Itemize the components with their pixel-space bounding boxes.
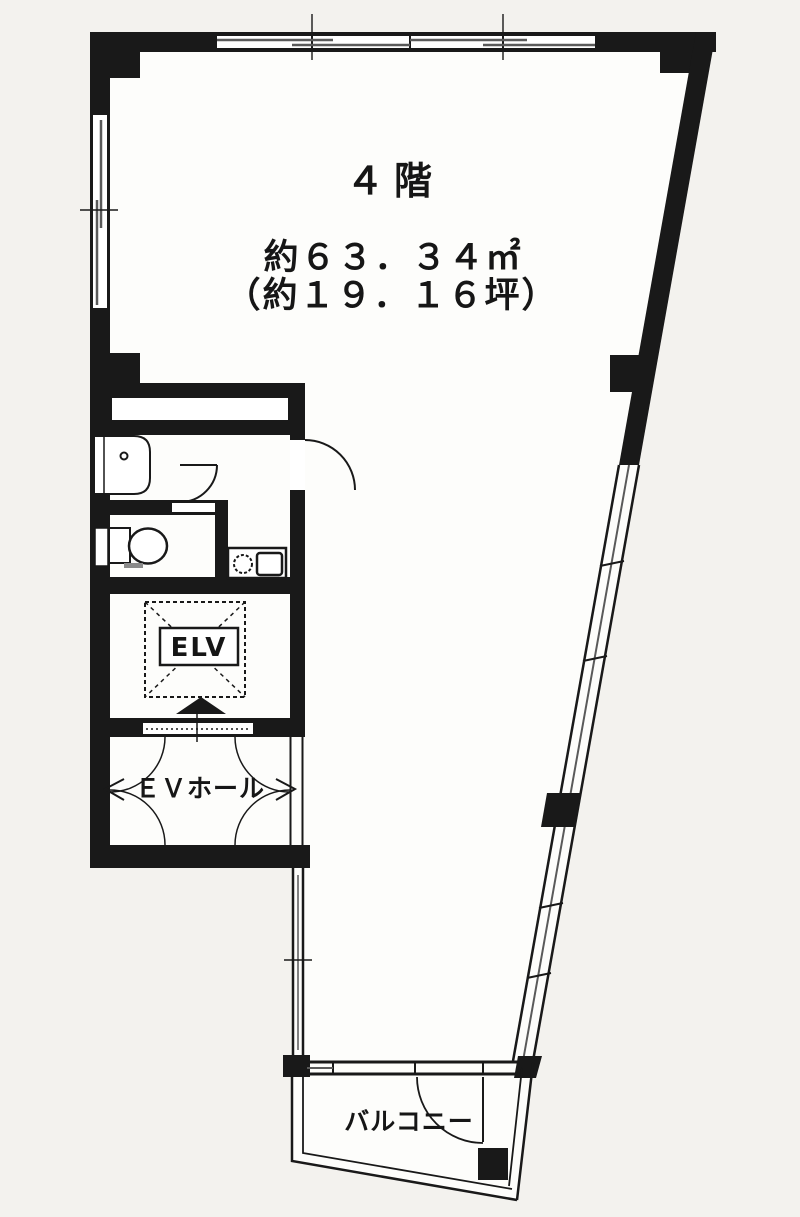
kitchen-sink-icon (228, 548, 286, 578)
vanity-faucet (121, 453, 128, 460)
core-wall-slot (112, 398, 288, 420)
ev-hall-label: ＥＶホール (135, 774, 265, 803)
right-wall-window-pier (541, 793, 581, 827)
area-tsubo: （約１９．１６坪） (225, 276, 558, 316)
core-bottom-wall (90, 577, 305, 594)
toilet-door-opening (172, 503, 216, 512)
floor-plan-page: ELV ＥＶホール (0, 0, 800, 1217)
balcony-label: バルコニー (344, 1107, 474, 1136)
right-wall-pier (610, 355, 642, 392)
toilet-tank (109, 528, 130, 563)
floor-plan-canvas: ELV ＥＶホール (0, 0, 800, 1217)
toilet-base (124, 563, 143, 568)
elevator-label: ELV (171, 633, 228, 663)
area-square-meters: 約６３．３４㎡ (263, 237, 522, 278)
vanity-sink-icon (94, 436, 150, 494)
core-right-wall (290, 383, 305, 718)
toilet-icon (95, 528, 167, 568)
vanity-body (94, 436, 150, 494)
entry-door-opening (290, 440, 305, 490)
balcony-pillar-block (478, 1148, 508, 1180)
floor-title: ４階 (346, 159, 442, 203)
kitchen-drainboard (257, 553, 282, 575)
ev-hall-bottom-wall (90, 845, 310, 868)
left-wall-pier (90, 353, 140, 385)
toilet-bowl (129, 529, 167, 564)
kitchen-sink-bowl (234, 555, 252, 573)
toilet-side-panel (95, 528, 108, 566)
